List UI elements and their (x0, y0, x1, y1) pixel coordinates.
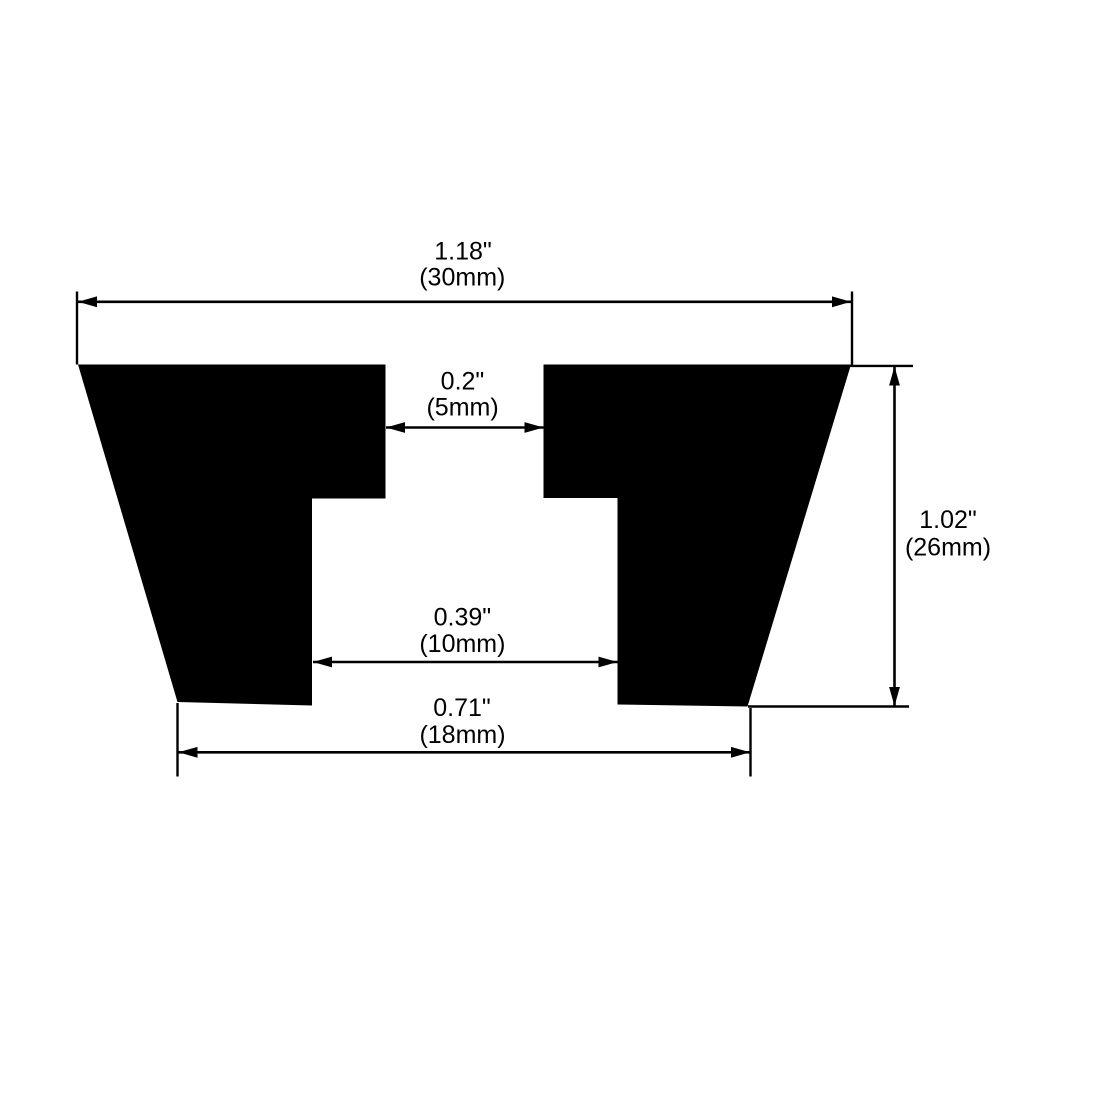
svg-text:1.02": 1.02" (919, 506, 977, 534)
svg-text:0.39": 0.39" (434, 604, 492, 632)
svg-text:(10mm): (10mm) (419, 630, 505, 658)
svg-text:(18mm): (18mm) (419, 721, 505, 749)
svg-text:(26mm): (26mm) (905, 534, 991, 562)
svg-text:0.71": 0.71" (433, 694, 491, 722)
svg-text:(5mm): (5mm) (426, 394, 498, 422)
svg-text:0.2": 0.2" (441, 368, 485, 396)
svg-text:(30mm): (30mm) (419, 264, 505, 292)
svg-text:1.18": 1.18" (434, 238, 492, 266)
